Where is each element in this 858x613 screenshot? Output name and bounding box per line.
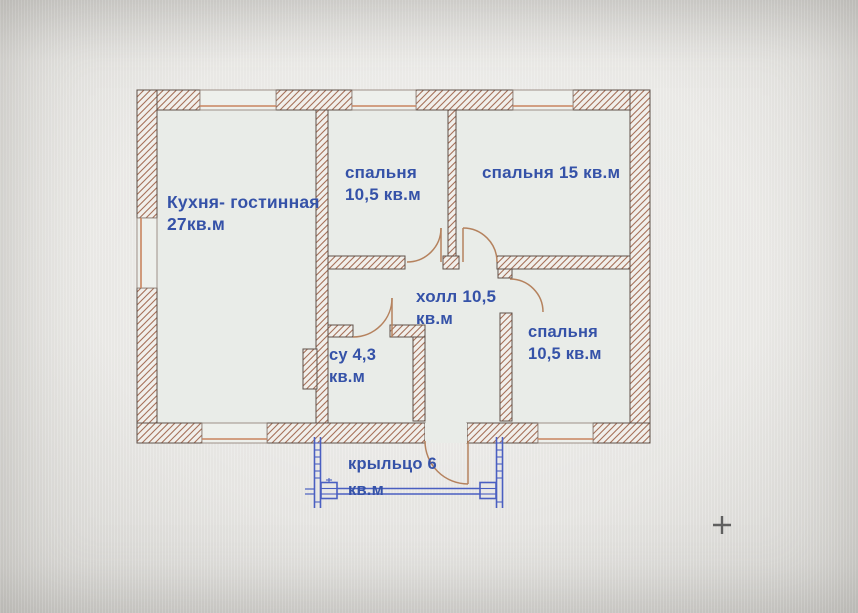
- room-label-hall: холл 10,5 кв.м: [416, 286, 496, 330]
- hall-label-line2: кв.м: [416, 308, 496, 330]
- bedroom2-bottom-wall: [497, 256, 630, 269]
- porch-label-line2: кв.м: [348, 477, 437, 503]
- bedroom2-label-line1: спальня 15 кв.м: [482, 162, 620, 184]
- room-label-bedroom-bottom-right: спальня 10,5 кв.м: [528, 321, 602, 365]
- bedroom1-label-line2: 10,5 кв.м: [345, 184, 421, 206]
- hall-label-line1: холл 10,5: [416, 286, 496, 308]
- entrance-door-opening: [425, 423, 467, 443]
- bedroom3-left-wall: [500, 313, 512, 421]
- bedroom1-bottom-wall: [328, 256, 405, 269]
- kitchen-right-wall: [316, 110, 328, 423]
- bathroom-right-wall: [413, 337, 425, 421]
- kitchen-duct-stub: [303, 349, 317, 389]
- bathroom-label-line1: су 4,3: [329, 344, 376, 366]
- bedroom1-label-line1: спальня: [345, 162, 421, 184]
- bedroom3-label-line2: 10,5 кв.м: [528, 343, 602, 365]
- room-label-kitchen-living: Кухня- гостинная 27кв.м: [167, 191, 320, 235]
- room-label-bedroom-top-right: спальня 15 кв.м: [482, 162, 620, 184]
- crosshair-cursor: [713, 516, 731, 534]
- kitchen-label-line1: Кухня- гостинная: [167, 191, 320, 213]
- bedroom-divider-wall: [448, 110, 456, 256]
- bathroom-top-wall-left: [328, 325, 353, 337]
- floor-plan-photo: АН: [0, 0, 858, 613]
- bathroom-label-line2: кв.м: [329, 366, 376, 388]
- bedroom-divider-footing: [443, 256, 459, 269]
- room-label-bathroom: су 4,3 кв.м: [329, 344, 376, 388]
- room-label-bedroom-top-middle: спальня 10,5 кв.м: [345, 162, 421, 206]
- porch-label-line1: крыльцо 6: [348, 451, 437, 477]
- room-label-porch: крыльцо 6 кв.м: [348, 451, 437, 503]
- bedroom3-wall-notch: [498, 269, 512, 278]
- bedroom3-label-line1: спальня: [528, 321, 602, 343]
- kitchen-label-line2: 27кв.м: [167, 213, 320, 235]
